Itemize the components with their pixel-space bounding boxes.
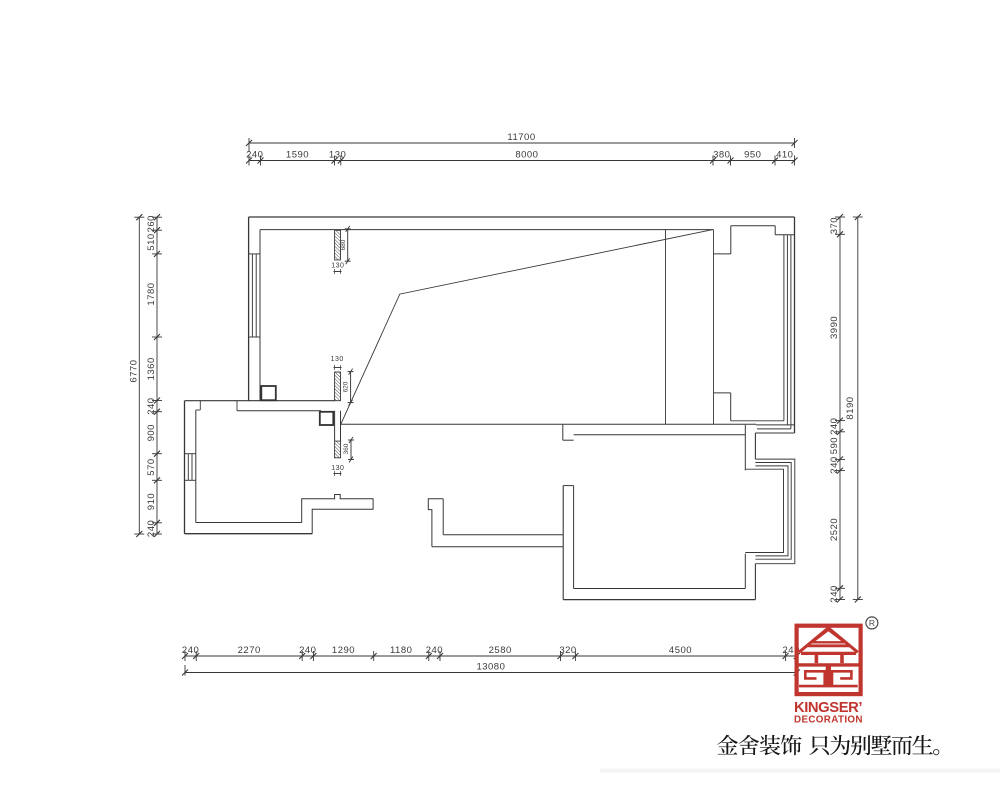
svg-text:1290: 1290 (332, 645, 355, 656)
svg-text:320: 320 (559, 645, 576, 656)
svg-text:1590: 1590 (286, 150, 309, 161)
svg-text:130: 130 (331, 465, 344, 472)
svg-text:8000: 8000 (515, 150, 538, 161)
svg-text:900: 900 (146, 424, 157, 441)
svg-text:6770: 6770 (128, 359, 139, 382)
svg-text:130: 130 (329, 150, 346, 161)
svg-text:240: 240 (299, 645, 316, 656)
svg-text:130: 130 (331, 263, 344, 270)
svg-text:1780: 1780 (146, 282, 157, 305)
svg-text:590: 590 (829, 437, 840, 454)
svg-text:11700: 11700 (507, 132, 535, 143)
svg-text:8190: 8190 (845, 396, 856, 419)
svg-text:1360: 1360 (146, 357, 157, 380)
svg-text:2520: 2520 (829, 518, 840, 541)
svg-text:DECORATION: DECORATION (794, 715, 863, 726)
svg-text:2580: 2580 (489, 645, 512, 656)
svg-text:240: 240 (246, 150, 263, 161)
svg-text:240: 240 (146, 520, 157, 537)
svg-text:380: 380 (713, 150, 730, 161)
svg-text:240: 240 (829, 456, 840, 473)
svg-text:620: 620 (342, 381, 349, 392)
svg-text:570: 570 (146, 458, 157, 475)
svg-text:130: 130 (331, 356, 344, 363)
svg-text:2270: 2270 (238, 645, 261, 656)
svg-text:1180: 1180 (390, 645, 412, 656)
svg-text:950: 950 (744, 150, 761, 161)
svg-text:260: 260 (146, 215, 157, 232)
svg-text:370: 370 (829, 217, 840, 234)
svg-text:510: 510 (146, 233, 157, 250)
svg-text:240: 240 (829, 418, 840, 435)
svg-text:13080: 13080 (476, 662, 505, 673)
svg-text:240: 240 (182, 645, 199, 656)
svg-text:910: 910 (146, 493, 157, 510)
svg-text:360: 360 (343, 443, 350, 454)
svg-text:240: 240 (829, 585, 840, 602)
svg-text:4500: 4500 (669, 645, 692, 656)
svg-text:240: 240 (426, 645, 443, 656)
svg-text:KINGSER’: KINGSER’ (794, 700, 863, 716)
svg-text:680: 680 (340, 239, 347, 250)
svg-text:240: 240 (146, 397, 157, 414)
svg-text:R: R (869, 618, 875, 628)
svg-text:410: 410 (776, 150, 793, 161)
svg-text:3990: 3990 (829, 316, 840, 339)
